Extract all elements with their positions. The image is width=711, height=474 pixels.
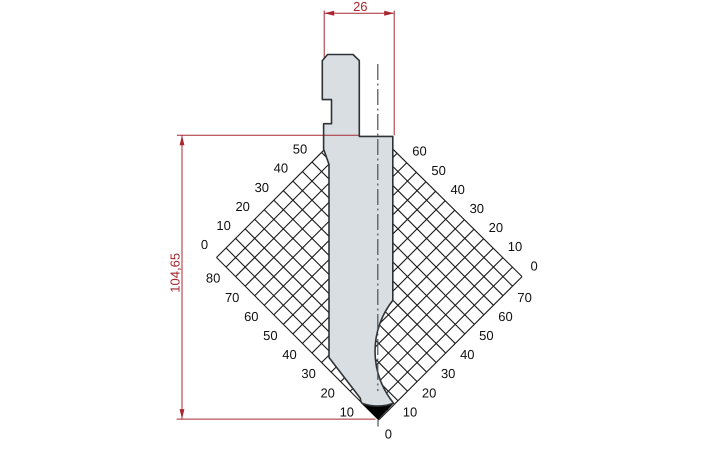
svg-text:70: 70 (517, 290, 531, 305)
svg-text:20: 20 (320, 385, 334, 400)
svg-text:10: 10 (508, 239, 522, 254)
svg-text:60: 60 (244, 309, 258, 324)
svg-text:50: 50 (293, 142, 307, 157)
svg-text:30: 30 (301, 366, 315, 381)
svg-text:40: 40 (450, 182, 464, 197)
svg-text:104,65: 104,65 (167, 253, 182, 293)
svg-text:20: 20 (422, 385, 436, 400)
svg-text:40: 40 (460, 347, 474, 362)
svg-text:30: 30 (255, 180, 269, 195)
svg-text:50: 50 (263, 328, 277, 343)
svg-text:10: 10 (340, 404, 354, 419)
svg-text:70: 70 (225, 290, 239, 305)
svg-text:0: 0 (385, 427, 392, 442)
svg-text:0: 0 (201, 237, 208, 252)
svg-text:26: 26 (353, 0, 367, 14)
svg-text:60: 60 (412, 144, 426, 159)
svg-text:30: 30 (470, 201, 484, 216)
svg-text:80: 80 (206, 271, 220, 286)
svg-text:40: 40 (282, 347, 296, 362)
svg-text:10: 10 (216, 218, 230, 233)
svg-text:60: 60 (498, 309, 512, 324)
svg-text:0: 0 (530, 258, 537, 273)
svg-text:20: 20 (235, 199, 249, 214)
svg-text:50: 50 (431, 163, 445, 178)
svg-text:20: 20 (489, 220, 503, 235)
svg-text:30: 30 (441, 366, 455, 381)
svg-text:40: 40 (274, 161, 288, 176)
svg-text:50: 50 (479, 328, 493, 343)
svg-text:10: 10 (403, 404, 417, 419)
